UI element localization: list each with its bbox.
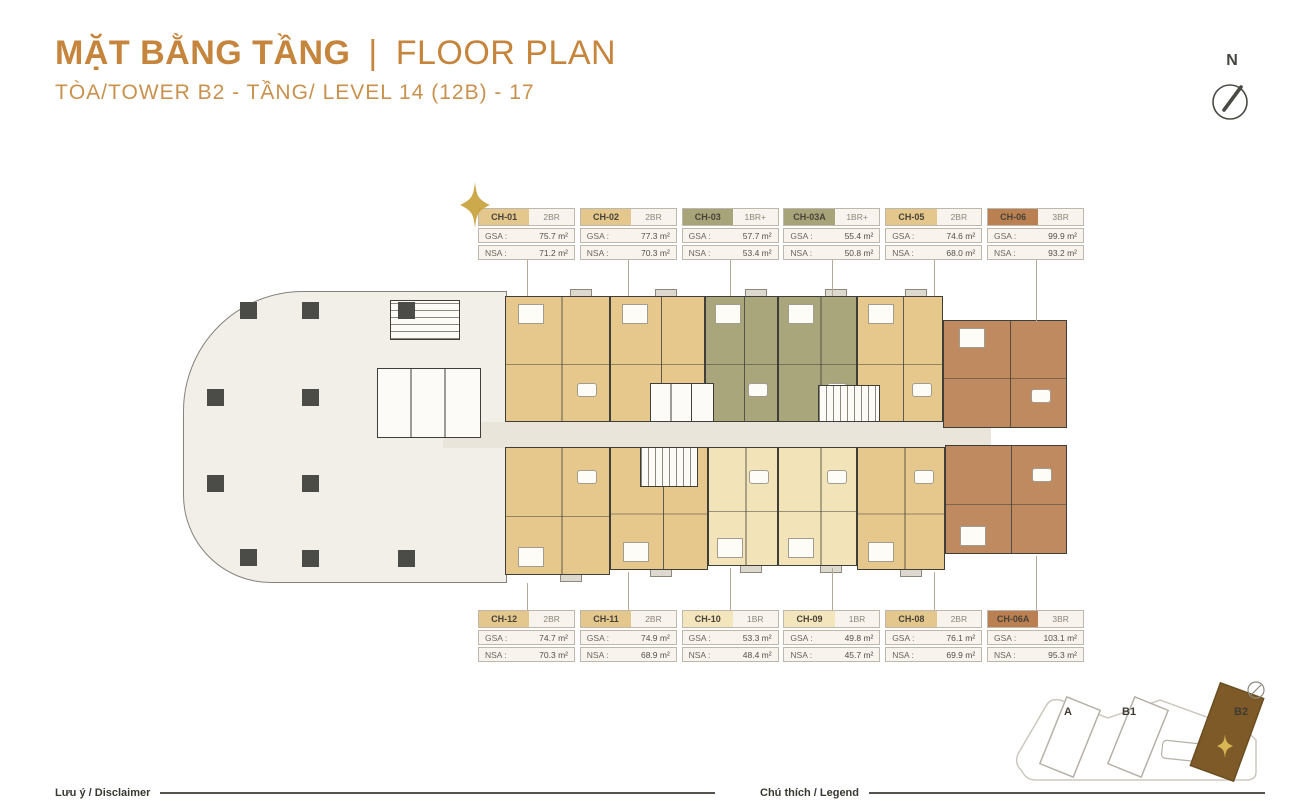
- structural-column: [398, 302, 415, 319]
- unit-type: 3BR: [1038, 212, 1083, 222]
- unit-card-header: CH-08 2BR: [885, 610, 982, 628]
- gsa-value: 53.3 m²: [743, 633, 772, 643]
- structural-column: [302, 550, 319, 567]
- unit-id: CH-06A: [988, 611, 1038, 627]
- unit-card-ch-11: CH-11 2BR GSA : 74.9 m² NSA : 68.9 m²: [580, 610, 677, 664]
- plan-unit-ch-08: [857, 447, 945, 570]
- nsa-label: NSA :: [689, 248, 711, 258]
- unit-card-ch-03a: CH-03A 1BR+ GSA : 55.4 m² NSA : 50.8 m²: [783, 208, 880, 262]
- structural-column: [207, 389, 224, 406]
- gsa-label: GSA :: [485, 231, 507, 241]
- plan-unit-ch-01: [505, 296, 610, 422]
- unit-id: CH-11: [581, 611, 631, 627]
- unit-type: 2BR: [631, 614, 676, 624]
- nsa-label: NSA :: [790, 650, 812, 660]
- unit-nsa-row: NSA : 45.7 m²: [783, 647, 880, 662]
- unit-id: CH-09: [784, 611, 834, 627]
- unit-gsa-row: GSA : 53.3 m²: [682, 630, 779, 645]
- nsa-value: 93.2 m²: [1048, 248, 1077, 258]
- podium-elevator-bank: [377, 368, 481, 438]
- nsa-value: 48.4 m²: [743, 650, 772, 660]
- nsa-label: NSA :: [790, 248, 812, 258]
- structural-column: [207, 475, 224, 492]
- unit-nsa-row: NSA : 68.9 m²: [580, 647, 677, 662]
- plan-unit-ch-03: [705, 296, 778, 422]
- unit-nsa-row: NSA : 93.2 m²: [987, 245, 1084, 260]
- unit-id: CH-08: [886, 611, 936, 627]
- unit-gsa-row: GSA : 74.7 m²: [478, 630, 575, 645]
- unit-type: 2BR: [529, 212, 574, 222]
- unit-card-header: CH-09 1BR: [783, 610, 880, 628]
- gsa-label: GSA :: [485, 633, 507, 643]
- facade-ledge: [560, 574, 582, 582]
- leader-line: [527, 583, 528, 610]
- leader-line: [527, 258, 528, 296]
- nsa-value: 68.0 m²: [946, 248, 975, 258]
- nsa-label: NSA :: [994, 650, 1016, 660]
- nsa-label: NSA :: [892, 248, 914, 258]
- unit-card-ch-06a: CH-06A 3BR GSA : 103.1 m² NSA : 95.3 m²: [987, 610, 1084, 664]
- gsa-value: 74.6 m²: [946, 231, 975, 241]
- unit-card-header: CH-10 1BR: [682, 610, 779, 628]
- leader-line: [1036, 258, 1037, 322]
- plan-unit-ch-09: [778, 447, 857, 566]
- unit-card-header: CH-03A 1BR+: [783, 208, 880, 226]
- unit-nsa-row: NSA : 48.4 m²: [682, 647, 779, 662]
- leader-line: [934, 258, 935, 296]
- structural-column: [240, 549, 257, 566]
- gsa-value: 76.1 m²: [946, 633, 975, 643]
- gsa-label: GSA :: [689, 633, 711, 643]
- gsa-label: GSA :: [790, 633, 812, 643]
- legend-label: Chú thích / Legend: [760, 787, 859, 799]
- unit-card-ch-08: CH-08 2BR GSA : 76.1 m² NSA : 69.9 m²: [885, 610, 982, 664]
- unit-type: 3BR: [1038, 614, 1083, 624]
- leader-line: [934, 572, 935, 610]
- legend-rule: [869, 792, 1265, 794]
- unit-type: 2BR: [937, 614, 982, 624]
- unit-nsa-row: NSA : 53.4 m²: [682, 245, 779, 260]
- gsa-label: GSA :: [892, 231, 914, 241]
- minimap-label-a: A: [1064, 706, 1072, 718]
- nsa-value: 45.7 m²: [845, 650, 874, 660]
- unit-nsa-row: NSA : 70.3 m²: [478, 647, 575, 662]
- site-minimap: A B1 B2: [1012, 676, 1290, 798]
- leader-line: [730, 568, 731, 610]
- legend-section: Chú thích / Legend: [760, 787, 1265, 799]
- tower-stair-top: [818, 385, 880, 422]
- unit-nsa-row: NSA : 95.3 m²: [987, 647, 1084, 662]
- gsa-value: 99.9 m²: [1048, 231, 1077, 241]
- minimap-label-b2: B2: [1234, 706, 1248, 718]
- unit-card-header: CH-03 1BR+: [682, 208, 779, 226]
- unit-card-ch-05: CH-05 2BR GSA : 74.6 m² NSA : 68.0 m²: [885, 208, 982, 262]
- unit-id: CH-12: [479, 611, 529, 627]
- nsa-value: 68.9 m²: [641, 650, 670, 660]
- tower-elevator-bank: [650, 383, 714, 422]
- unit-card-ch-09: CH-09 1BR GSA : 49.8 m² NSA : 45.7 m²: [783, 610, 880, 664]
- tower-stair-bottom: [640, 447, 698, 487]
- structural-column: [240, 302, 257, 319]
- gsa-value: 74.9 m²: [641, 633, 670, 643]
- gsa-value: 74.7 m²: [539, 633, 568, 643]
- nsa-value: 70.3 m²: [539, 650, 568, 660]
- leader-line: [832, 258, 833, 296]
- leader-line: [730, 258, 731, 296]
- nsa-label: NSA :: [587, 650, 609, 660]
- unit-gsa-row: GSA : 75.7 m²: [478, 228, 575, 243]
- gsa-value: 75.7 m²: [539, 231, 568, 241]
- unit-type: 2BR: [529, 614, 574, 624]
- unit-nsa-row: NSA : 50.8 m²: [783, 245, 880, 260]
- unit-card-header: CH-12 2BR: [478, 610, 575, 628]
- plan-unit-ch-06: [943, 320, 1067, 428]
- nsa-value: 53.4 m²: [743, 248, 772, 258]
- unit-id: CH-03: [683, 209, 733, 225]
- plan-unit-ch-12: [505, 447, 610, 575]
- minimap-label-b1: B1: [1122, 706, 1136, 718]
- unit-card-ch-02: CH-02 2BR GSA : 77.3 m² NSA : 70.3 m²: [580, 208, 677, 262]
- unit-gsa-row: GSA : 103.1 m²: [987, 630, 1084, 645]
- unit-nsa-row: NSA : 71.2 m²: [478, 245, 575, 260]
- nsa-value: 71.2 m²: [539, 248, 568, 258]
- nsa-label: NSA :: [892, 650, 914, 660]
- unit-card-header: CH-06A 3BR: [987, 610, 1084, 628]
- unit-nsa-row: NSA : 68.0 m²: [885, 245, 982, 260]
- site-minimap-graphic: [1012, 676, 1290, 798]
- unit-nsa-row: NSA : 69.9 m²: [885, 647, 982, 662]
- structural-column: [302, 475, 319, 492]
- nsa-value: 50.8 m²: [845, 248, 874, 258]
- unit-card-ch-03: CH-03 1BR+ GSA : 57.7 m² NSA : 53.4 m²: [682, 208, 779, 262]
- unit-id: CH-02: [581, 209, 631, 225]
- nsa-value: 70.3 m²: [641, 248, 670, 258]
- facade-ledge: [900, 569, 922, 577]
- gsa-value: 49.8 m²: [845, 633, 874, 643]
- unit-card-ch-12: CH-12 2BR GSA : 74.7 m² NSA : 70.3 m²: [478, 610, 575, 664]
- unit-id: CH-03A: [784, 209, 834, 225]
- gsa-label: GSA :: [994, 231, 1016, 241]
- unit-gsa-row: GSA : 77.3 m²: [580, 228, 677, 243]
- disclaimer-label: Lưu ý / Disclaimer: [55, 787, 150, 799]
- disclaimer-section: Lưu ý / Disclaimer: [55, 787, 715, 799]
- leader-line: [628, 572, 629, 610]
- gsa-label: GSA :: [587, 633, 609, 643]
- unit-gsa-row: GSA : 55.4 m²: [783, 228, 880, 243]
- disclaimer-rule: [160, 792, 715, 794]
- unit-type: 1BR: [733, 614, 778, 624]
- leader-line: [832, 568, 833, 610]
- facade-ledge: [740, 565, 762, 573]
- featured-star-icon: [452, 182, 498, 228]
- gsa-value: 57.7 m²: [743, 231, 772, 241]
- unit-nsa-row: NSA : 70.3 m²: [580, 245, 677, 260]
- unit-type: 1BR: [835, 614, 880, 624]
- unit-card-header: CH-11 2BR: [580, 610, 677, 628]
- structural-column: [398, 550, 415, 567]
- unit-gsa-row: GSA : 49.8 m²: [783, 630, 880, 645]
- nsa-label: NSA :: [587, 248, 609, 258]
- unit-id: CH-06: [988, 209, 1038, 225]
- gsa-label: GSA :: [689, 231, 711, 241]
- leader-line: [1036, 556, 1037, 610]
- nsa-value: 95.3 m²: [1048, 650, 1077, 660]
- gsa-label: GSA :: [994, 633, 1016, 643]
- gsa-label: GSA :: [790, 231, 812, 241]
- floor-plan-page: MẶT BẰNG TẦNG | FLOOR PLAN TÒA/TOWER B2 …: [0, 0, 1293, 800]
- unit-gsa-row: GSA : 76.1 m²: [885, 630, 982, 645]
- unit-id: CH-10: [683, 611, 733, 627]
- unit-type: 1BR+: [835, 212, 880, 222]
- gsa-value: 55.4 m²: [845, 231, 874, 241]
- unit-type: 1BR+: [733, 212, 778, 222]
- unit-card-header: CH-02 2BR: [580, 208, 677, 226]
- unit-id: CH-05: [886, 209, 936, 225]
- nsa-value: 69.9 m²: [946, 650, 975, 660]
- plan-unit-ch-06a: [945, 445, 1067, 554]
- facade-ledge: [650, 569, 672, 577]
- gsa-label: GSA :: [892, 633, 914, 643]
- unit-card-header: CH-05 2BR: [885, 208, 982, 226]
- unit-card-ch-06: CH-06 3BR GSA : 99.9 m² NSA : 93.2 m²: [987, 208, 1084, 262]
- nsa-label: NSA :: [485, 248, 507, 258]
- structural-column: [302, 389, 319, 406]
- gsa-value: 77.3 m²: [641, 231, 670, 241]
- leader-line: [628, 258, 629, 296]
- unit-gsa-row: GSA : 57.7 m²: [682, 228, 779, 243]
- unit-gsa-row: GSA : 99.9 m²: [987, 228, 1084, 243]
- unit-gsa-row: GSA : 74.9 m²: [580, 630, 677, 645]
- nsa-label: NSA :: [689, 650, 711, 660]
- unit-type: 2BR: [937, 212, 982, 222]
- corridor: [443, 422, 991, 448]
- nsa-label: NSA :: [485, 650, 507, 660]
- unit-card-header: CH-06 3BR: [987, 208, 1084, 226]
- structural-column: [302, 302, 319, 319]
- unit-card-ch-10: CH-10 1BR GSA : 53.3 m² NSA : 48.4 m²: [682, 610, 779, 664]
- nsa-label: NSA :: [994, 248, 1016, 258]
- gsa-value: 103.1 m²: [1043, 633, 1077, 643]
- unit-gsa-row: GSA : 74.6 m²: [885, 228, 982, 243]
- unit-type: 2BR: [631, 212, 676, 222]
- tower-b1-outline: [1108, 697, 1168, 777]
- plan-unit-ch-10: [708, 447, 778, 566]
- gsa-label: GSA :: [587, 231, 609, 241]
